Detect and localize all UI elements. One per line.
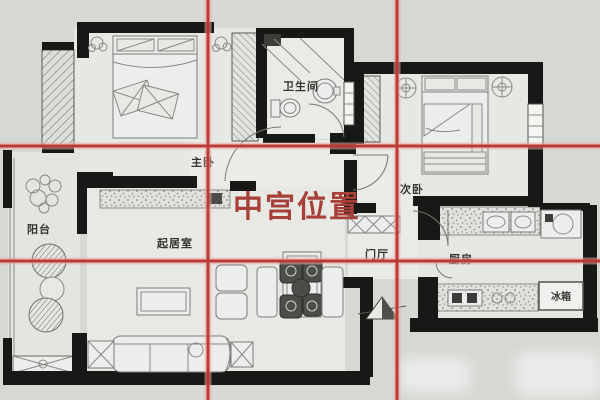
plant-leaf-2 [29,298,63,332]
master-bed [113,36,197,138]
dining-bench-left [257,267,277,317]
kitchen-counter-bottom [428,284,538,311]
sofa [112,336,230,372]
bathroom-window [344,82,354,125]
fridge-label: 冰箱 [551,290,571,303]
master-window-planter [42,50,74,145]
dining-cabinet [231,342,253,367]
bay-window-seat [13,356,74,373]
plant-pot [40,277,64,301]
washer [264,34,281,46]
toilet-icon [271,99,300,117]
dining-bench-right [322,267,343,317]
sofa-side-table [88,341,114,368]
second-bedroom-window [528,104,543,147]
second-bed [422,76,488,174]
label-second-bedroom: 次卧 [400,182,424,196]
master-wardrobe [232,33,258,141]
center-palace-label: 中宫位置 [233,190,361,224]
armchair-1 [216,265,247,291]
sink-icon [483,212,535,232]
floor-plan-screenshot: 冰箱 主卧 卫生间 次卧 阳台 起居室 门厅 厨房 [0,0,600,400]
table-centerpiece [292,279,310,297]
armchair-2 [216,293,247,319]
fridge: 冰箱 [539,282,583,310]
floor-plan-canvas: 冰箱 主卧 卫生间 次卧 阳台 起居室 门厅 厨房 [0,0,600,400]
label-living-room: 起居室 [156,236,193,250]
label-bathroom: 卫生间 [283,79,319,93]
label-balcony: 阳台 [27,222,51,236]
stove-unit [541,210,581,238]
